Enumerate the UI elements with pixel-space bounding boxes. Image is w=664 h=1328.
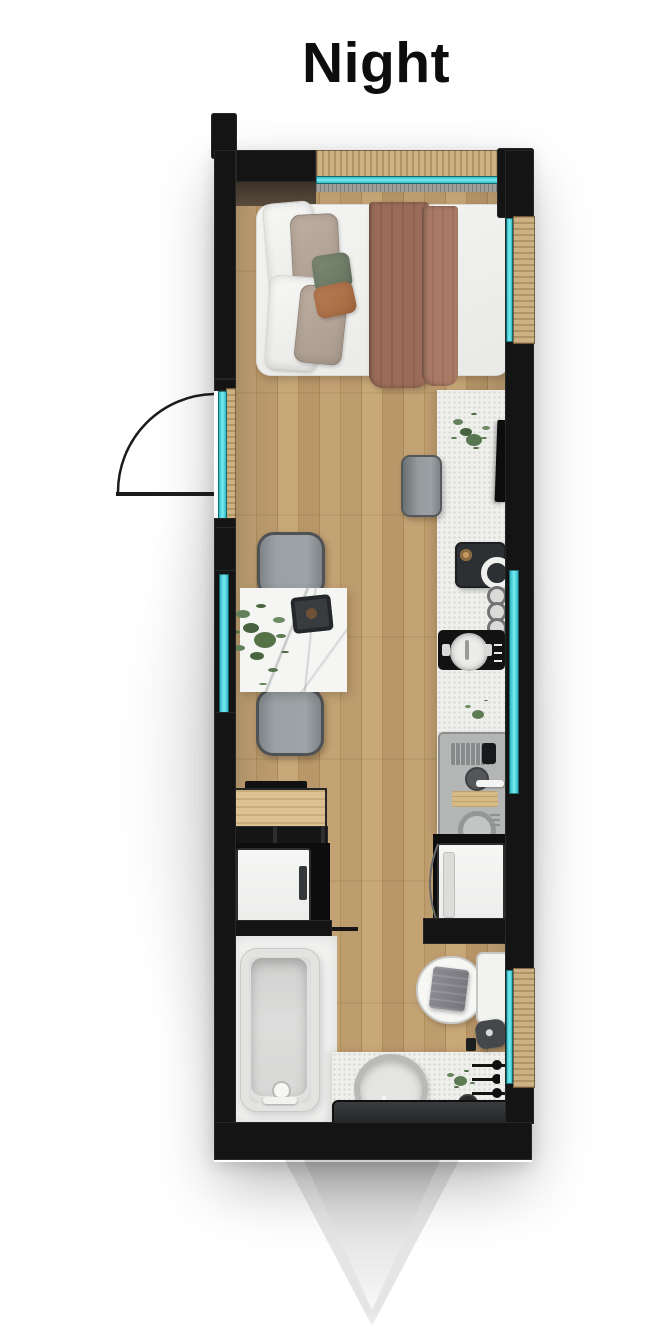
waste-bin [466,1038,476,1051]
washer-dryer [437,843,505,929]
counter-stool [401,455,442,517]
left-window-glass [219,574,229,714]
tray-bowl [305,608,317,620]
pot-lid-handle [465,640,469,660]
closet-door-arc [420,841,442,927]
top-wall [236,150,316,182]
left-wall-upper [214,150,236,379]
bottom-wall [214,1122,532,1160]
cutting-board [452,791,498,807]
cooking-pot [450,633,488,671]
refrigerator [236,848,311,926]
entry-door-sill [226,388,236,522]
counter-plant [466,434,482,446]
top-window-sill [316,150,498,178]
plan-title: Night [302,30,450,96]
right-window-upper-sill [513,216,535,344]
serving-tray [290,594,334,634]
stool-detail [485,1029,493,1037]
bathroom-stool [474,1018,508,1050]
top-window-glass [316,176,498,184]
pot-handle-right [484,644,492,656]
coffee-cup-small [460,549,472,561]
bed-blanket-fold [422,206,458,386]
refrigerator-handle [299,866,307,900]
page-root: Night [0,0,664,1328]
table-plant [254,632,276,648]
coffee-machine [455,542,506,588]
rack-knob-3 [492,1088,502,1098]
sliding-door-edge [332,927,358,931]
kitchen-plant [472,710,484,719]
tub-spout [263,1097,297,1104]
bathroom-partition-stub [423,918,510,944]
sink-faucet [476,780,504,787]
washer-vents [490,814,500,826]
right-window-upper-glass [506,218,513,342]
bathroom-plant [454,1076,467,1086]
sink-basin [465,767,489,791]
left-wall-stub [214,527,236,572]
right-window-lower-glass [506,970,513,1084]
pot-handle-left [442,644,450,656]
entry-door-swing-arc [114,390,220,502]
kettle [482,743,496,764]
cooktop-controls [494,638,502,662]
induction-cooktop [438,630,505,670]
bed-blanket [369,202,429,388]
tiny-house-floor-plan [214,112,538,1164]
toilet-towel [429,966,470,1012]
sink-unit [438,732,509,844]
left-wall-lower [214,712,236,1124]
dining-bench-bottom [256,688,324,756]
washer-dryer-handle [443,852,455,918]
right-window-lower-sill [513,968,535,1088]
bathtub [240,948,320,1112]
right-window-middle-glass [509,570,519,794]
bathtub-basin [251,958,307,1096]
